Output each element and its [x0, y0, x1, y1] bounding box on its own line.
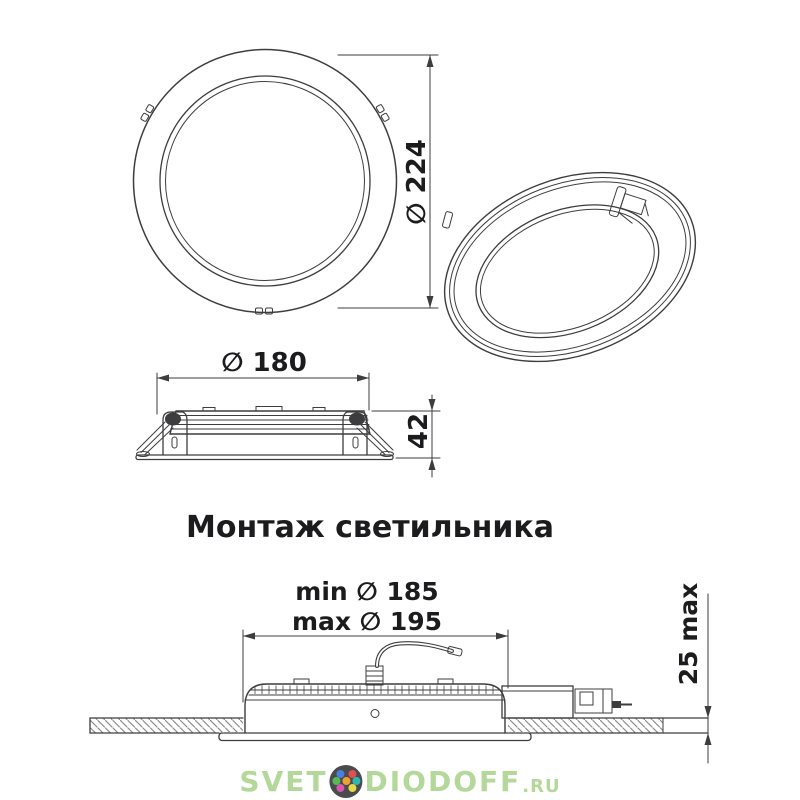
mounting-title: Монтаж светильника	[160, 510, 580, 545]
perspective-view	[417, 138, 723, 395]
side-view	[136, 373, 440, 477]
dim-label-hole-min: min ∅ 185	[247, 579, 487, 605]
perspective-left-tab	[442, 211, 453, 228]
side-diameter-dimension	[157, 373, 369, 414]
front-view	[134, 50, 439, 315]
plug-pin	[612, 701, 621, 708]
watermark-suffix: .RU	[522, 776, 560, 797]
logo-dot	[348, 784, 356, 792]
dim-label-side-diameter: ∅ 180	[184, 350, 344, 376]
watermark-text-svet: SVET	[239, 765, 327, 798]
logo-dot	[342, 777, 350, 785]
watermark: SVET DIODOFF .RU	[239, 761, 560, 800]
ceiling-depth-dimension	[705, 594, 712, 763]
dim-label-side-height: 42	[405, 401, 433, 461]
logo-dot	[336, 784, 344, 792]
dim-label-front-diameter: ∅ 224	[403, 132, 431, 232]
fixture-body	[245, 679, 505, 733]
dim-label-hole-max: max ∅ 195	[247, 609, 487, 635]
ceiling-section	[90, 718, 708, 733]
technical-drawing-page: ∅ 224 ∅ 180 42 Монтаж светильника min ∅ …	[0, 0, 800, 800]
watermark-logo-icon	[329, 765, 362, 798]
dim-label-ceiling-depth: 25 max	[676, 579, 702, 689]
watermark-text-diodoff: DIODOFF	[364, 765, 521, 798]
driver-box	[502, 686, 632, 718]
fixture-flange	[219, 733, 531, 741]
